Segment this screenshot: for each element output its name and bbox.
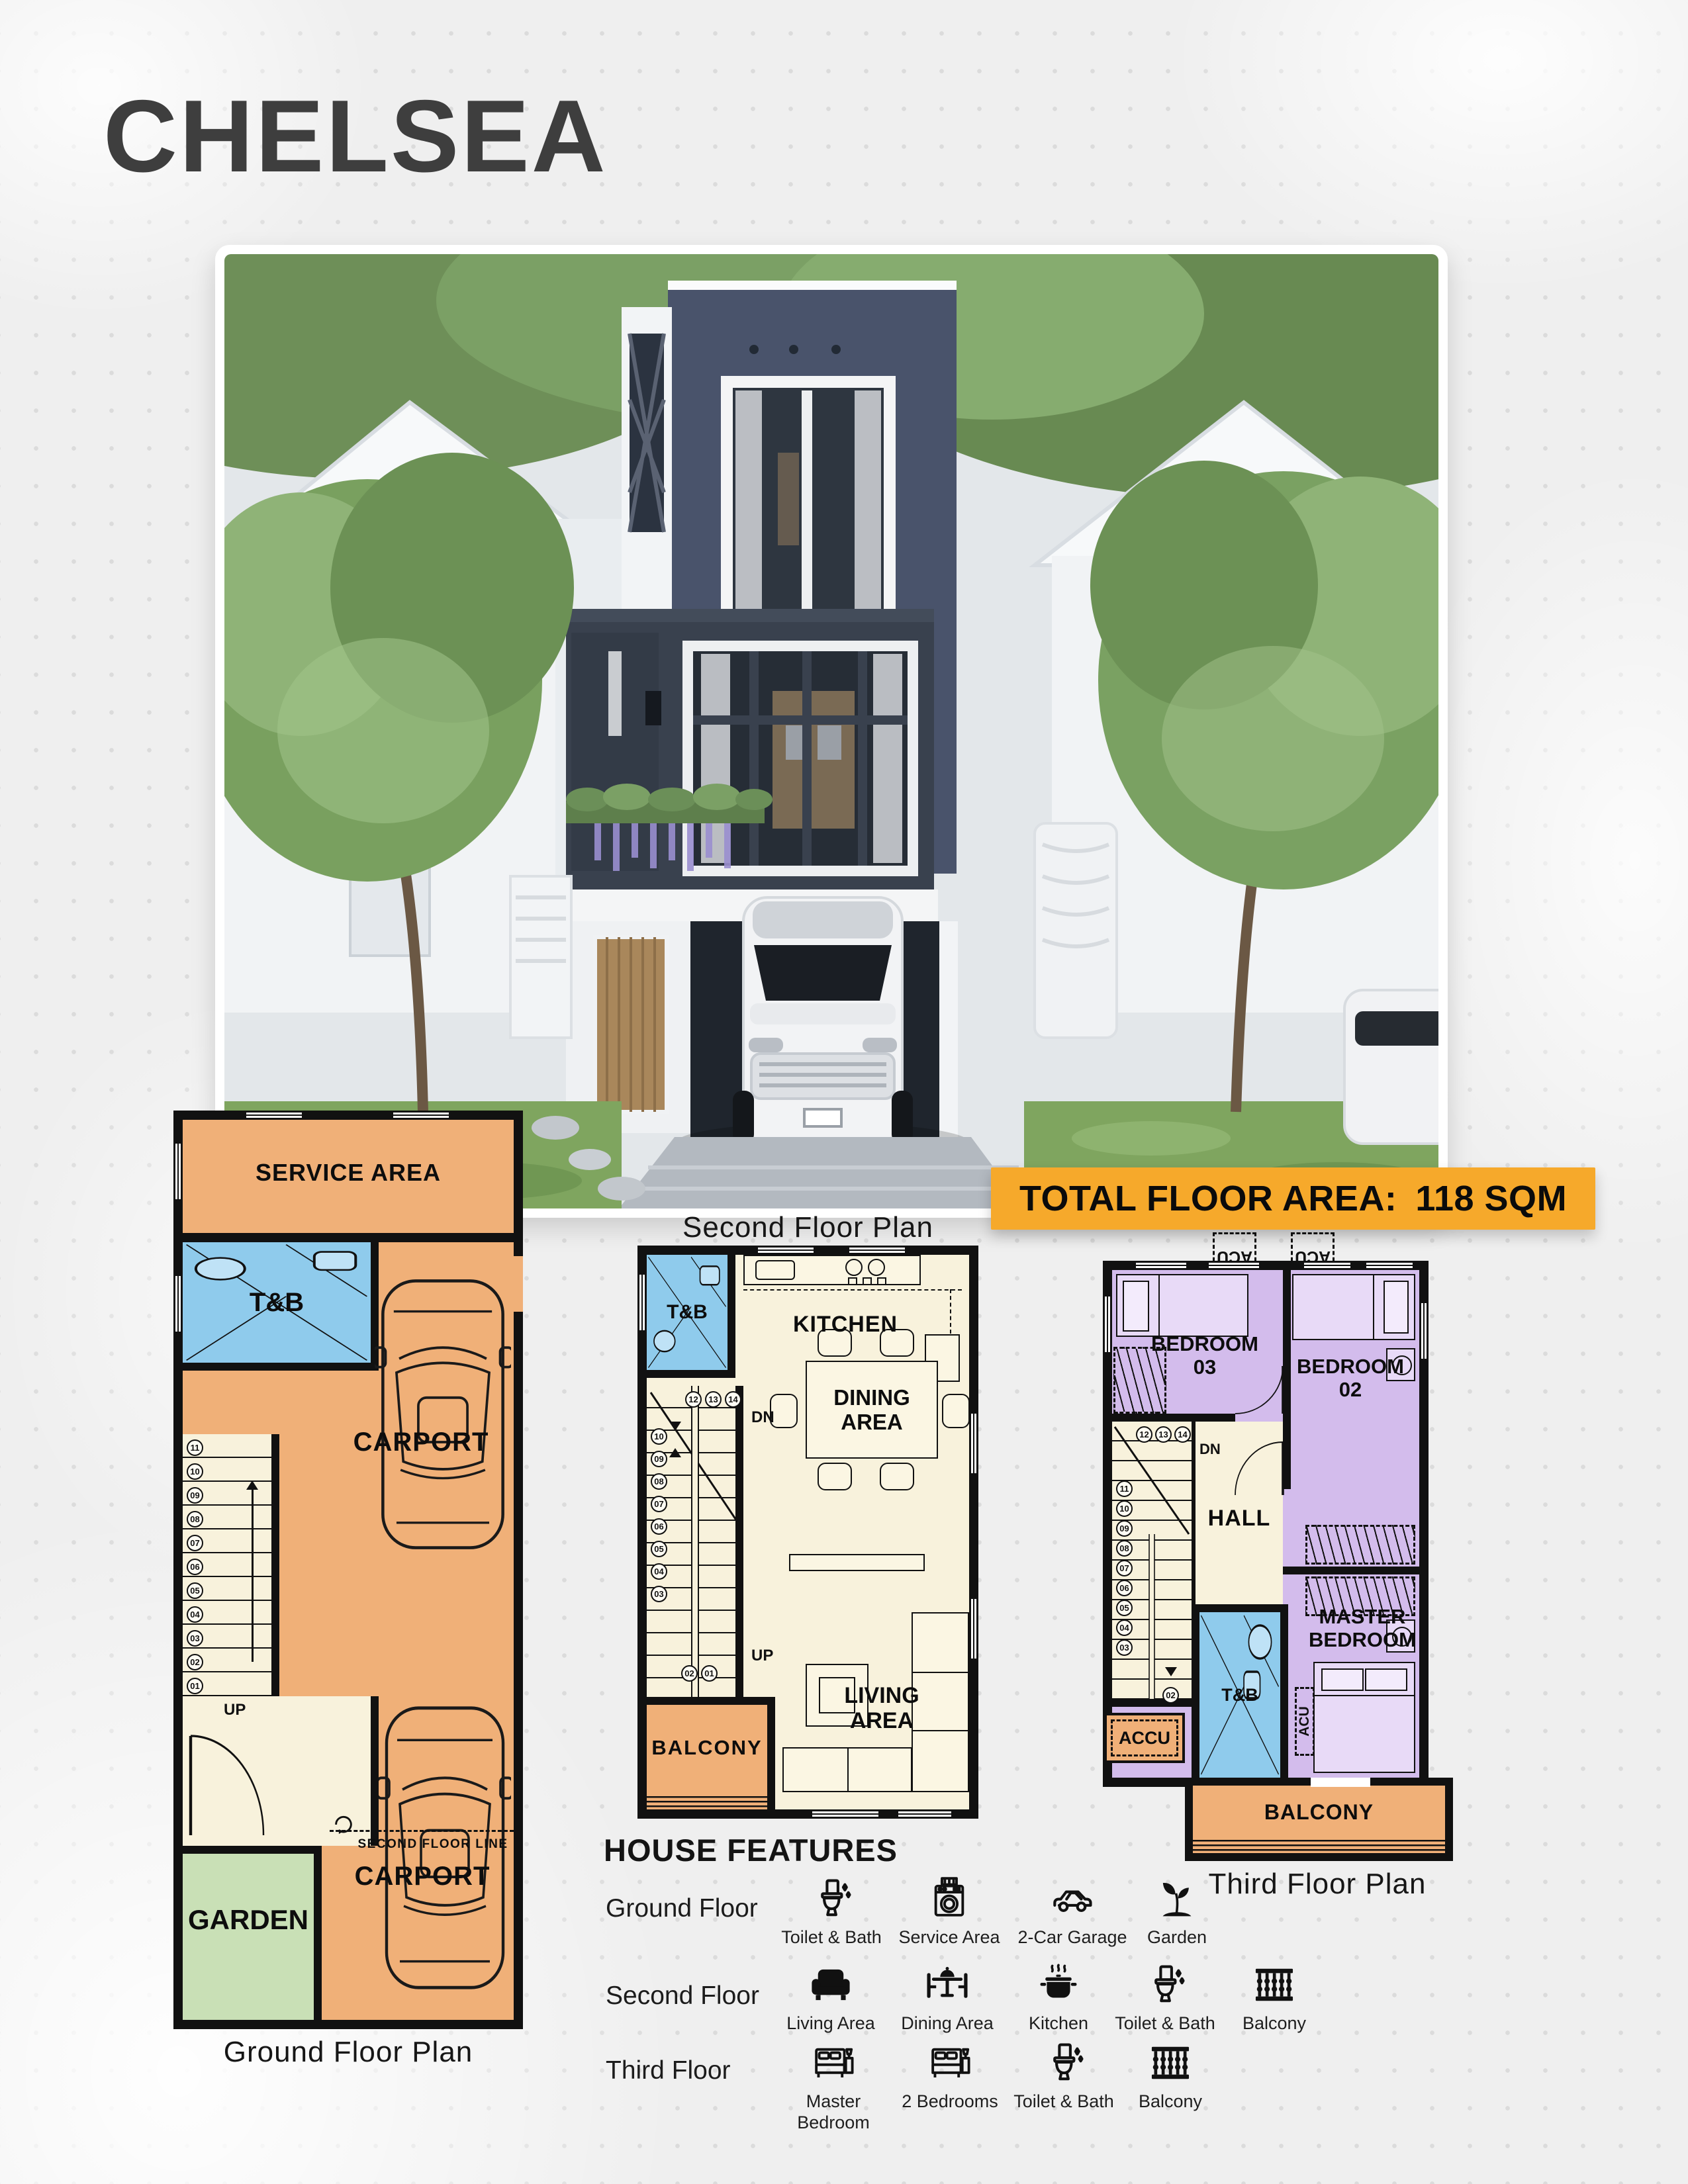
- stair-step-number: 02: [1162, 1687, 1179, 1704]
- sofa-drawing: [782, 1747, 912, 1792]
- counter-dashed-line: [743, 1289, 962, 1291]
- bed-icon: [812, 2041, 855, 2085]
- balcony-icon: [1149, 2041, 1192, 2085]
- washer-icon: [927, 1877, 971, 1921]
- feature-caption: Garden: [1147, 1927, 1207, 1948]
- window: [1103, 1297, 1112, 1352]
- armchair-icon: [809, 1963, 853, 2007]
- feature-caption: Balcony: [1243, 2013, 1306, 2034]
- feature-caption: Balcony: [1139, 2091, 1202, 2113]
- second-floor-line: [330, 1830, 514, 1832]
- feature-item: Service Area: [886, 1877, 1012, 1948]
- stair-step-number: 07: [1116, 1560, 1133, 1576]
- bed-drawing: [1116, 1274, 1248, 1337]
- wall: [1112, 1414, 1235, 1422]
- second-floor-plan-title: Second Floor Plan: [637, 1211, 978, 1244]
- feature-caption: Dining Area: [901, 2013, 994, 2034]
- feature-caption: 2-Car Garage: [1017, 1927, 1127, 1948]
- room-balcony-label: BALCONY: [1193, 1797, 1445, 1828]
- stair-step-number: 04: [651, 1563, 667, 1580]
- room-service-area-label: SERVICE AREA: [183, 1156, 514, 1189]
- stair-step-number: 02: [681, 1665, 698, 1682]
- room-garden: GARDEN: [183, 1846, 322, 2020]
- stair-step-number: 10: [651, 1428, 667, 1445]
- feature-item: Toilet & Bath: [769, 1877, 894, 1948]
- wall: [1280, 1604, 1288, 1778]
- feature-caption: Kitchen: [1029, 2013, 1088, 2034]
- feature-caption: Master Bedroom: [797, 2091, 870, 2134]
- window: [1136, 1261, 1186, 1270]
- car-top-view-drawing: [375, 1275, 511, 1553]
- room-toilet-bath-label: T&B: [647, 1255, 727, 1370]
- stair-numbers-side: 111009080706050403: [1116, 1480, 1133, 1656]
- room-kitchen-label: KITCHEN: [759, 1309, 931, 1340]
- window: [173, 1144, 183, 1199]
- stair-direction-arrow: [669, 1422, 681, 1431]
- car-icon: [1051, 1877, 1094, 1921]
- stair-step-number: 08: [187, 1511, 203, 1527]
- stair-step-number: 11: [1116, 1480, 1133, 1497]
- wall: [1283, 1270, 1291, 1489]
- window: [1366, 1261, 1413, 1270]
- stair-step-number: 06: [651, 1518, 667, 1535]
- balcony-icon: [1252, 1963, 1296, 2007]
- second-floor-line-label: SECOND FLOOR LINE: [352, 1835, 514, 1854]
- stair-step-number: 10: [187, 1463, 203, 1480]
- room-living-label: LIVING AREA: [816, 1678, 948, 1738]
- stair-step-number: 11: [187, 1439, 203, 1456]
- toilet-icon: [810, 1877, 853, 1921]
- stair-numbers-top: 121314: [1136, 1426, 1191, 1443]
- stair-numbers: 1110090807060504030201: [187, 1439, 203, 1694]
- window: [246, 1111, 302, 1120]
- stair-step-number: 05: [651, 1541, 667, 1557]
- dining-icon: [925, 1963, 969, 2007]
- wall: [183, 1233, 514, 1242]
- feature-row-label-second: Second Floor: [606, 1981, 759, 2011]
- pot-icon: [1037, 1963, 1080, 2007]
- stove-burner-drawing: [863, 1277, 872, 1285]
- feature-caption: Service Area: [898, 1927, 1000, 1948]
- stair-step-number: 07: [651, 1496, 667, 1512]
- feature-item: Master Bedroom: [771, 2041, 896, 2134]
- stair-step-number: 08: [651, 1473, 667, 1490]
- stair-dn-label: DN: [1199, 1441, 1221, 1458]
- stair-step-number: 12: [685, 1391, 702, 1408]
- stair-step-number: 08: [1116, 1540, 1133, 1557]
- stair-step-number: 01: [187, 1678, 203, 1694]
- wall: [1192, 1612, 1199, 1778]
- window: [393, 1111, 449, 1120]
- acu-label: ACU: [1297, 1706, 1313, 1737]
- stair-step-number: 10: [1116, 1500, 1133, 1517]
- wardrobe-drawing: [1305, 1525, 1415, 1565]
- banner-value: 118 SQM: [1415, 1178, 1567, 1219]
- room-toilet-bath: T&B: [1199, 1612, 1280, 1778]
- stair-numbers-side: 1009080706050403: [651, 1428, 667, 1602]
- window: [849, 1246, 905, 1255]
- room-master-label: MASTER BEDROOM: [1304, 1601, 1421, 1657]
- feature-row-label-ground: Ground Floor: [606, 1894, 758, 1923]
- feature-caption: Toilet & Bath: [781, 1927, 882, 1948]
- room-toilet-bath: T&B: [183, 1242, 379, 1371]
- feature-item: Living Area: [768, 1963, 894, 2034]
- room-garden-label: GARDEN: [183, 1900, 314, 1940]
- feature-caption: Toilet & Bath: [1115, 2013, 1215, 2034]
- flyer-page: CHELSEA: [0, 0, 1688, 2184]
- stair-numbers-bottom: 02: [1162, 1687, 1179, 1704]
- house-render-illustration: [224, 254, 1438, 1208]
- stair-step-number: 12: [1136, 1426, 1152, 1443]
- feature-item: Toilet & Bath: [1102, 1963, 1228, 2034]
- room-balcony: BALCONY: [1185, 1778, 1453, 1861]
- house-render-photo: [215, 245, 1448, 1218]
- balcony-door-opening: [1311, 1778, 1370, 1787]
- stair-step-number: 05: [1116, 1600, 1133, 1616]
- stair-step-number: 06: [1116, 1580, 1133, 1596]
- stair-step-number: 04: [187, 1606, 203, 1623]
- entry-door-arc: [191, 1736, 263, 1835]
- window: [1419, 1303, 1429, 1359]
- third-floor-plan-caption: Third Floor Plan: [1158, 1868, 1476, 1901]
- feature-item: Dining Area: [884, 1963, 1010, 2034]
- accu-unit: ACCU: [1104, 1713, 1185, 1763]
- stove-burner-drawing: [877, 1277, 886, 1285]
- stair-arrow-line: [252, 1490, 254, 1662]
- window: [812, 1809, 878, 1819]
- kitchen-sink-drawing: [755, 1260, 795, 1280]
- window: [637, 1275, 647, 1330]
- room-bedroom2-label: BEDROOM 02: [1292, 1351, 1409, 1406]
- window: [969, 1599, 978, 1659]
- feature-caption: Living Area: [786, 2013, 875, 2034]
- feature-row-label-third: Third Floor: [606, 2056, 731, 2085]
- wall: [1283, 1567, 1419, 1574]
- stair-step-number: 07: [187, 1535, 203, 1551]
- room-carport-upper-label: CARPORT: [335, 1426, 507, 1459]
- stair-step-number: 03: [187, 1630, 203, 1647]
- stair-step-number: 13: [705, 1391, 722, 1408]
- toilet-icon: [1042, 2041, 1086, 2085]
- stove-burner-drawing: [868, 1259, 885, 1276]
- stair-up-label: UP: [751, 1647, 773, 1665]
- stair-step-number: 04: [1116, 1619, 1133, 1636]
- console-drawing: [789, 1554, 925, 1571]
- room-toilet-bath-label: T&B: [183, 1242, 371, 1363]
- stair-step-number: 02: [187, 1654, 203, 1670]
- wall: [1192, 1604, 1283, 1612]
- door-opening: [514, 1256, 523, 1312]
- stair-dn-label: DN: [751, 1408, 774, 1427]
- stair-up-label: UP: [224, 1701, 246, 1719]
- chair-drawing: [880, 1463, 914, 1490]
- bedroom3-door-arc: [1235, 1366, 1283, 1414]
- stair-step-number: 09: [651, 1451, 667, 1467]
- room-balcony: BALCONY: [647, 1697, 775, 1809]
- second-floor-plan: T&B KITCHEN DINING AREA 121314 DN: [637, 1246, 978, 1819]
- feature-caption: 2 Bedrooms: [902, 2091, 998, 2113]
- acu-indoor-unit: ACU: [1295, 1687, 1315, 1756]
- banner-label: TOTAL FLOOR AREA:: [1019, 1178, 1397, 1219]
- stair-step-number: 03: [651, 1586, 667, 1602]
- stair-numbers-bottom: 0201: [681, 1665, 718, 1682]
- stair-step-number: 09: [187, 1487, 203, 1504]
- feature-item: Balcony: [1107, 2041, 1233, 2113]
- room-carport-lower-label: CARPORT: [336, 1860, 508, 1893]
- ground-floor-plan-caption: Ground Floor Plan: [173, 2036, 523, 2069]
- stair-numbers-top: 121314: [685, 1391, 741, 1408]
- chair-drawing: [818, 1463, 852, 1490]
- window: [173, 1276, 183, 1332]
- stair-direction-arrow: [669, 1448, 681, 1457]
- stair-step-number: 14: [1174, 1426, 1191, 1443]
- stair-step-number: 13: [1155, 1426, 1172, 1443]
- rotate-arrow-icon: [332, 1813, 355, 1836]
- stair-step-number: 03: [1116, 1639, 1133, 1656]
- feature-item: 2 Bedrooms: [887, 2041, 1013, 2113]
- wall: [1112, 1699, 1192, 1707]
- stair-step-number: 09: [1116, 1520, 1133, 1537]
- third-floor-plan: BEDROOM 03 BEDROOM 02 HALL 121314: [1103, 1261, 1429, 1787]
- room-toilet-bath-label: T&B: [1199, 1612, 1280, 1778]
- stair-direction-arrow: [1165, 1667, 1177, 1676]
- feature-caption: Toilet & Bath: [1013, 2091, 1114, 2113]
- window: [1209, 1261, 1259, 1270]
- room-toilet-bath: T&B: [647, 1255, 735, 1378]
- stair-step-number: 14: [725, 1391, 741, 1408]
- window: [969, 1414, 978, 1473]
- ground-floor-plan: SERVICE AREA T&B 1110090807060504030201 …: [173, 1111, 523, 2029]
- features-heading: HOUSE FEATURES: [604, 1832, 898, 1868]
- toilet-icon: [1143, 1963, 1187, 2007]
- stair-step-number: 01: [701, 1665, 718, 1682]
- total-floor-area-banner: TOTAL FLOOR AREA: 118 SQM: [991, 1167, 1595, 1230]
- room-hall-label: HALL: [1196, 1502, 1283, 1535]
- chair-drawing: [942, 1394, 970, 1428]
- window: [1304, 1261, 1350, 1270]
- bed-drawing: [1313, 1662, 1415, 1773]
- stove-burner-drawing: [848, 1277, 857, 1285]
- accu-label: ACCU: [1107, 1715, 1182, 1760]
- room-dining-label: DINING AREA: [812, 1381, 931, 1440]
- feature-item: Balcony: [1211, 1963, 1337, 2034]
- stove-burner-drawing: [845, 1259, 863, 1276]
- bed-icon: [928, 2041, 972, 2085]
- stair-step-number: 05: [187, 1582, 203, 1599]
- bed-drawing: [1292, 1274, 1415, 1340]
- stair-direction-arrow: [246, 1480, 258, 1490]
- stair-step-number: 06: [187, 1559, 203, 1575]
- page-title: CHELSEA: [103, 85, 608, 187]
- room-balcony-label: BALCONY: [647, 1731, 767, 1764]
- window: [758, 1246, 814, 1255]
- bedroom2-door-arc: [1235, 1442, 1283, 1495]
- window: [898, 1809, 951, 1819]
